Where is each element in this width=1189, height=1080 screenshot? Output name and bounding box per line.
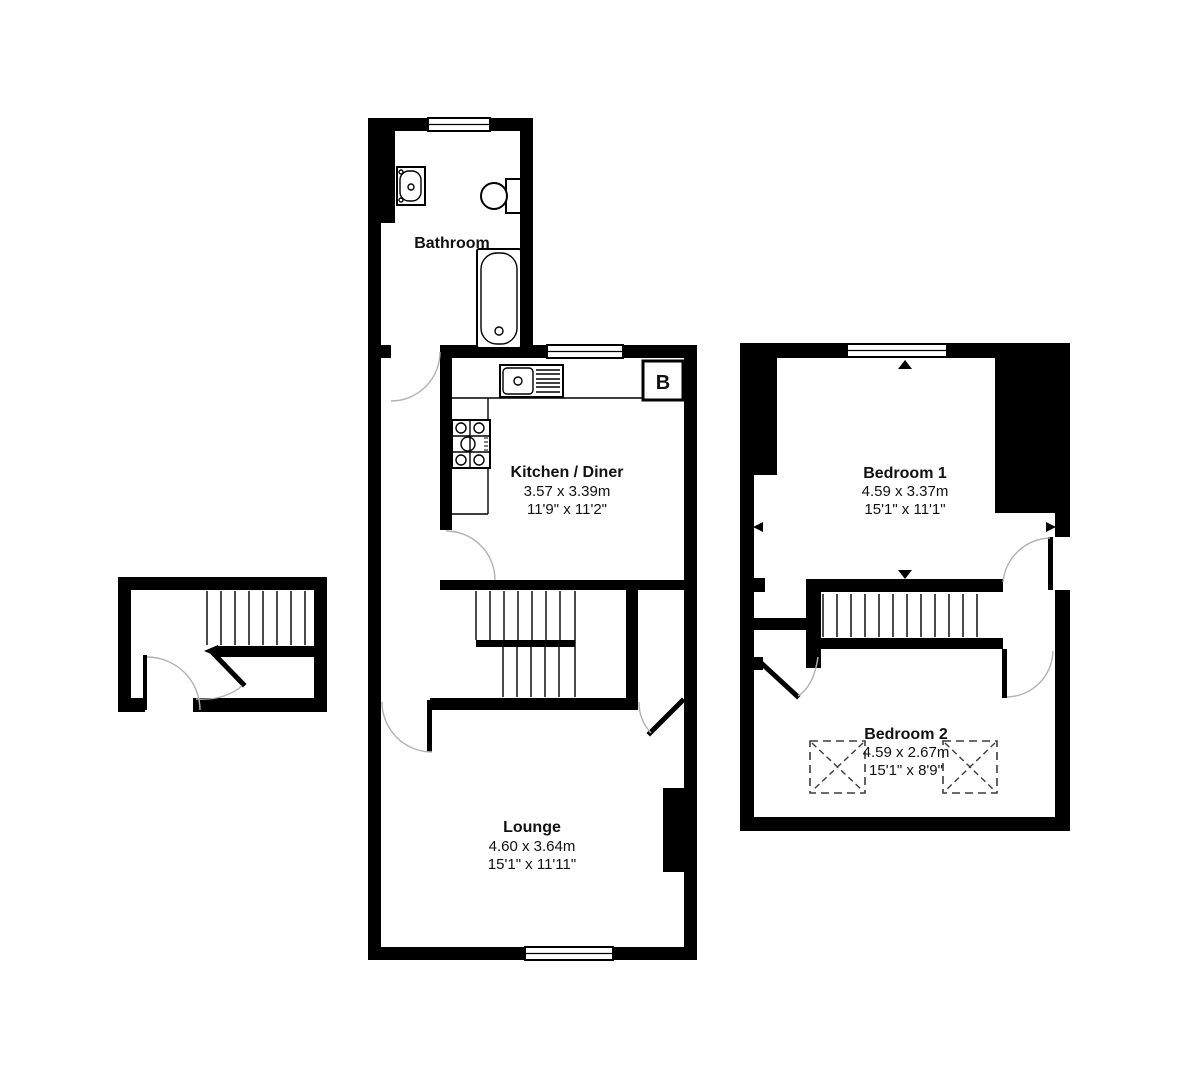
room-dim-metric: 3.57 x 3.39m [524,483,611,500]
bathroom-wall-stub [381,131,395,223]
door-arc [147,657,200,710]
lounge-top-wall [430,698,626,710]
dimension-arrow-right [1046,522,1056,532]
stairs-corridor-divider-wall [626,590,638,710]
left-building: B Bathroom Kitchen / Diner 3.57 x 3.39m … [368,118,697,960]
boiler-label: B [656,372,670,394]
room-dim-metric: 4.59 x 3.37m [862,483,949,500]
main-staircase [476,591,575,697]
right-building: Bedroom 1 4.59 x 3.37m 15'1" x 11'1" Bed… [740,343,1070,831]
door-leaf [427,700,432,752]
lounge-chimney-breast [663,788,684,872]
outbuilding-right-wall [314,577,327,712]
door-leaf [650,701,682,733]
bedroom1-door [1003,537,1053,590]
bedrooms-right-wall-upper [1055,343,1070,537]
outbuilding [118,577,327,712]
room-dim-imperial: 15'1" x 11'1" [864,501,945,518]
room-label-bedroom2: Bedroom 2 4.59 x 2.67m 15'1" x 8'9" [863,726,950,779]
floor-plan-svg: B Bathroom Kitchen / Diner 3.57 x 3.39m … [0,0,1189,1080]
outbuilding-understair-wall [218,646,327,657]
outbuilding-stair-treads [207,591,305,645]
bedroom-understair-wall [821,638,1003,649]
door-leaf [1002,649,1007,698]
bathroom-window [428,118,490,131]
kitchen-left-wall [440,358,452,530]
left-outer-wall [368,118,381,960]
outbuilding-understair-door [196,654,243,699]
door-leaf [1048,537,1053,590]
boiler: B [643,361,683,400]
floor-plan: B Bathroom Kitchen / Diner 3.57 x 3.39m … [0,0,1189,1080]
room-name: Lounge [503,819,561,836]
kitchen-sink-unit [500,365,563,397]
bath-outline [477,249,521,348]
landing-closet-wall [753,618,811,630]
stair-treads-upper [476,591,560,640]
room-dim-imperial: 11'9" x 11'2" [527,501,607,518]
dimension-arrow-left [753,522,763,532]
dashed-cross [945,743,995,791]
outbuilding-bottom-wall-left [118,698,145,712]
bathroom-door-arc [391,352,440,401]
door-arc [639,702,651,733]
outbuilding-bottom-wall-right [193,698,327,712]
door-leaf [759,661,797,696]
outbuilding-entrance-door [143,655,200,710]
stair-treads-lower [503,647,559,697]
room-name: Kitchen / Diner [511,464,624,481]
roof-marker-right [943,741,997,793]
roof-marker-left [810,741,865,793]
bathtub [477,249,521,348]
toilet [481,179,521,213]
bedrooms-left-wall [740,343,754,831]
bathroom-door-hinge-stub [381,345,391,358]
room-dim-metric: 4.59 x 2.67m [863,744,950,761]
room-dim-imperial: 15'1" x 11'11" [488,856,576,873]
outbuilding-left-wall [118,577,131,712]
toilet-cistern [506,179,521,213]
dimension-arrow-down [898,570,912,579]
room-dim-imperial: 15'1" x 8'9" [869,762,943,779]
bedroom-stairs-top-wall [806,579,1003,592]
room-label-bathroom: Bathroom [414,235,490,252]
kitchen-window [547,345,623,358]
bedroom1-builtin-block [995,358,1055,513]
room-name: Bedroom 2 [864,726,948,743]
stairs-lounge-door [639,701,682,733]
kitchen-hob [452,420,490,468]
door-leaf [143,655,147,710]
dimension-arrow-up [898,360,912,369]
bedroom1-window [847,344,947,357]
bedroom2-door [1002,649,1053,698]
bathroom-sink [397,167,425,205]
room-name: Bedroom 1 [863,465,947,482]
lounge-window [525,947,613,960]
stair-flight-divider [476,640,575,647]
stair-treads [823,594,963,637]
room-label-bedroom1: Bedroom 1 4.59 x 3.37m 15'1" x 11'1" [862,465,949,518]
dashed-cross [812,743,863,791]
outbuilding-top-wall [118,577,327,590]
room-dim-metric: 4.60 x 3.64m [489,838,576,855]
door-arc [1007,651,1053,697]
bedroom-staircase [823,594,977,637]
toilet-bowl [481,183,507,209]
room-label-lounge: Lounge 4.60 x 3.64m 15'1" x 11'11" [488,819,576,873]
bedroom1-left-wall-thickening [754,358,777,475]
bedroom2-bottom-wall [740,817,1070,831]
stairs-top-wall [440,580,684,590]
hall-lounge-door [382,700,432,752]
door-arc [1003,538,1050,582]
bedrooms-right-wall-lower [1055,590,1070,831]
room-label-kitchen: Kitchen / Diner 3.57 x 3.39m 11'9" x 11'… [511,464,624,518]
door-arc [196,686,242,699]
door-arc [382,702,432,752]
landing-wall-stub-upper [753,578,765,592]
door-leaf [214,654,243,684]
kitchen-door-arc [446,531,495,580]
right-outer-wall [684,345,697,960]
